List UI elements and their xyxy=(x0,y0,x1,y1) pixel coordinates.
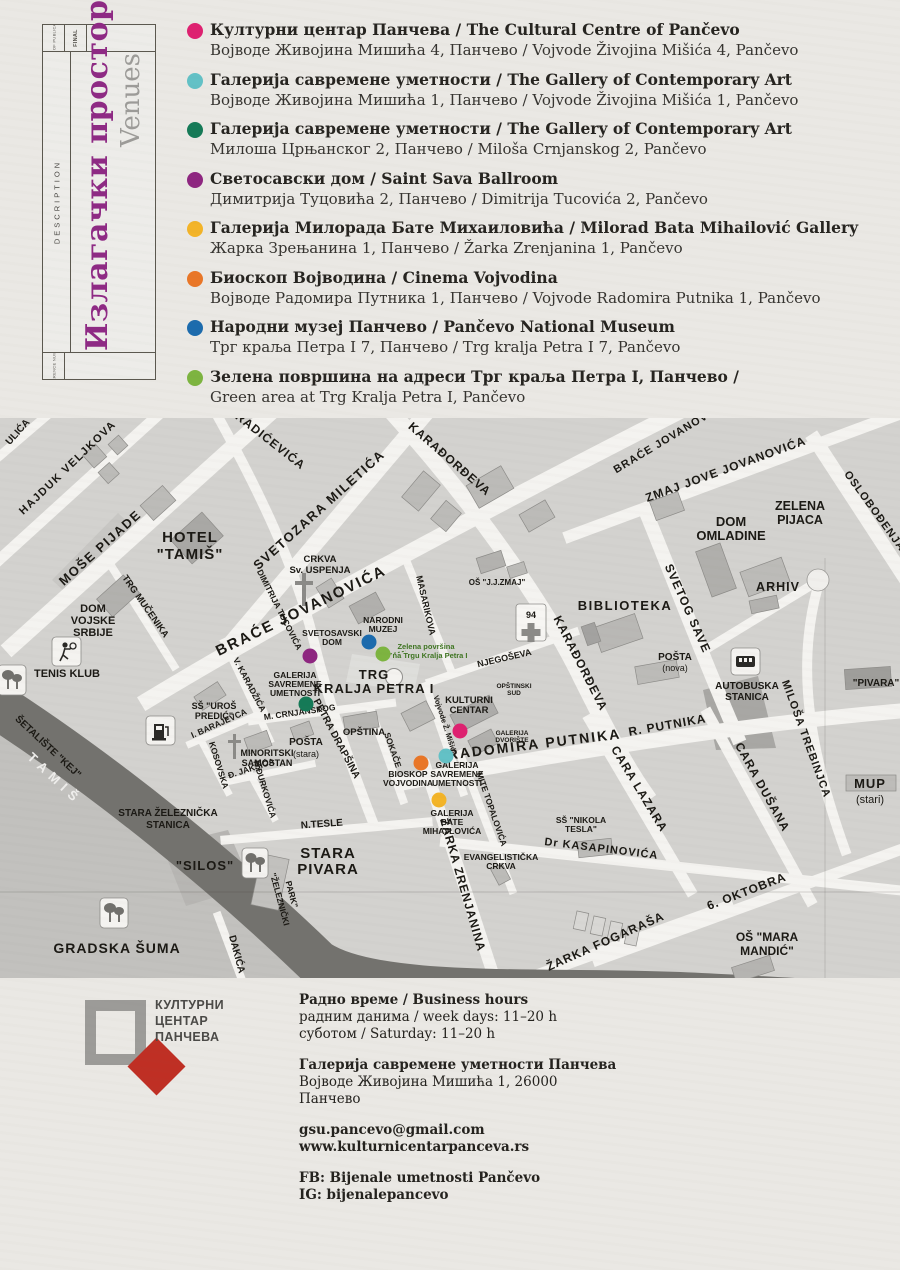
venue-name: Народни музеј Панчево / Pančevo National… xyxy=(210,317,680,337)
legend-item: Биоскоп Војводина / Cinema Vojvodina Вој… xyxy=(187,268,887,308)
map-label: STANICA xyxy=(725,692,769,703)
map-label: OMLADINE xyxy=(696,528,766,543)
map-label: CENTAR xyxy=(450,705,489,716)
map-label: (stara) xyxy=(293,749,319,759)
map-label: "TAMIŠ" xyxy=(157,545,224,563)
gallery-address-line1: Војводе Живојина Мишића 1, 26000 xyxy=(299,1074,729,1091)
map-label: MANDIĆ" xyxy=(740,943,794,958)
page-title: Излагачки простори xyxy=(80,53,116,351)
web-contact-block: gsu.pancevo@gmail.com www.kulturnicentar… xyxy=(299,1122,729,1156)
logo-line: ПАНЧЕВА xyxy=(155,1029,224,1045)
map-label: SUD xyxy=(507,690,521,697)
map-label: STANICA xyxy=(146,820,190,831)
description-label: DESCRIPTION xyxy=(52,160,61,244)
map-label: OŠ "MARA xyxy=(736,929,799,944)
map-label: UMETNOSTI xyxy=(270,688,320,698)
gallery-name: Галерија савремене уметности Панчева xyxy=(299,1057,729,1074)
map-label: Sv. USPENJA xyxy=(289,565,350,576)
legend-item: Народни музеј Панчево / Pančevo National… xyxy=(187,317,887,357)
frame-bottom-row: REFERENCE NUMBER xyxy=(43,352,155,379)
venue-dot-kulturni-centar xyxy=(453,724,468,739)
venue-name: Зелена површина на адреси Трг краља Петр… xyxy=(210,367,739,387)
venue-color-dot xyxy=(187,172,203,188)
venue-name: Културни центар Панчева / The Cultural C… xyxy=(210,20,798,40)
map-label: VOJVODINA xyxy=(383,778,433,788)
map-label: AUTOBUSKA xyxy=(715,681,779,692)
legend-item: Галерија савремене уметности / The Galle… xyxy=(187,119,887,159)
map-label: SŠ "UROŠ xyxy=(192,700,237,711)
legend-item: Културни центар Панчева / The Cultural C… xyxy=(187,20,887,60)
map-label: STARA xyxy=(300,845,356,862)
map-label: VOJSKE xyxy=(71,615,116,627)
map-label: PIJACA xyxy=(777,513,823,527)
venue-address: Димитрија Туцовића 2, Панчево / Dimitrij… xyxy=(210,189,708,209)
venue-color-dot xyxy=(187,23,203,39)
vertical-title: Излагачки простори Venues xyxy=(80,53,146,351)
venue-dot-galerija-bate-mihajlovica xyxy=(432,793,447,808)
venue-name: Галерија савремене уметности / The Galle… xyxy=(210,70,798,90)
map-label: PIVARA xyxy=(297,861,359,878)
tree-icon xyxy=(242,848,268,878)
map-label: SRBIJE xyxy=(73,627,113,639)
frame-cell-reference: REFERENCE NUMBER xyxy=(43,353,65,379)
venue-address: Милоша Црњанског 2, Панчево / Miloša Crn… xyxy=(210,139,792,159)
tree-icon xyxy=(0,665,26,695)
business-hours-saturday: суботом / Saturday: 11–20 h xyxy=(299,1026,729,1043)
bus-icon xyxy=(731,648,760,675)
gallery-address-line2: Панчево xyxy=(299,1091,729,1108)
map-label: OPŠTINSKI xyxy=(496,681,531,690)
venue-color-dot xyxy=(187,221,203,237)
business-hours-title: Радно време / Business hours xyxy=(299,992,729,1009)
venue-address: Green area at Trg Kralja Petra I, Pančev… xyxy=(210,387,739,407)
map-label: HOTEL xyxy=(162,529,218,546)
venue-dot-svetosavski-dom xyxy=(303,649,318,664)
map-label: TESLA" xyxy=(565,824,597,834)
map-label: OPŠTINA xyxy=(343,726,385,738)
venue-address: Војводе Живојина Мишића 1, Панчево / Voj… xyxy=(210,90,798,110)
map-label: DOM xyxy=(716,514,746,529)
venue-address: Жарка Зрењанина 1, Панчево / Žarka Zrenj… xyxy=(210,238,858,258)
venue-dot-narodni-muzej xyxy=(362,635,377,650)
logo-line: ЦЕНТАР xyxy=(155,1013,224,1029)
venue-dot-galerija-savremene-misica xyxy=(439,749,454,764)
legend-item: Зелена површина на адреси Трг краља Петр… xyxy=(187,367,887,407)
venue-color-dot xyxy=(187,370,203,386)
reference-label: REFERENCE NUMBER xyxy=(51,353,56,379)
map-label: DOM xyxy=(80,603,106,615)
email-address: gsu.pancevo@gmail.com xyxy=(299,1122,729,1139)
map-label: "PIVARA" xyxy=(853,678,900,689)
frame-cell-empty2 xyxy=(65,353,155,379)
venue-color-dot xyxy=(187,271,203,287)
logo-line: КУЛТУРНИ xyxy=(155,997,224,1013)
map-label: CRKVA xyxy=(486,861,516,871)
instagram-handle: IG: bijenalepancevo xyxy=(299,1187,729,1204)
legend-item: Галерија савремене уметности / The Galle… xyxy=(187,70,887,110)
page-title-en: Venues xyxy=(116,53,146,351)
venue-dot-zelena-povrsina xyxy=(376,647,391,662)
gallery-address-block: Галерија савремене уметности Панчева Вој… xyxy=(299,1057,729,1108)
city-map: ULIĆAHAJDUK VELJKOVAMOŠE PIJADESVETOZARA… xyxy=(0,418,900,978)
description-column: DESCRIPTION xyxy=(43,52,71,352)
map-label: POŠTA xyxy=(289,735,323,748)
map-label: OŠ "J.J.ZMAJ" xyxy=(469,578,526,587)
tree-icon xyxy=(100,898,128,928)
map-label: MUZEJ xyxy=(369,624,398,634)
legend-item: Галерија Милорада Бате Михаиловића / Mil… xyxy=(187,218,887,258)
map-label: (nova) xyxy=(662,663,688,673)
map-label: UMETNOSTI xyxy=(432,778,482,788)
map-label: (stari) xyxy=(856,794,884,806)
venue-color-dot xyxy=(187,122,203,138)
map-label: CRKVA xyxy=(303,554,336,565)
facebook-handle: FB: Bijenale umetnosti Pančevo xyxy=(299,1170,729,1187)
map-label: DOM xyxy=(322,637,342,647)
venue-name: Биоскоп Војводина / Cinema Vojvodina xyxy=(210,268,821,288)
venue-address: Војводе Радомира Путника 1, Панчево / Vo… xyxy=(210,288,821,308)
venue-address: Трг краља Петра I 7, Панчево / Trg kralj… xyxy=(210,337,680,357)
title-column: Излагачки простори Venues xyxy=(71,52,155,352)
venue-dot-galerija-savremene-crnjanskog xyxy=(299,697,314,712)
map-label: MUP xyxy=(854,776,886,791)
venue-name: Галерија Милорада Бате Михаиловића / Mil… xyxy=(210,218,858,238)
tennis-icon xyxy=(52,637,81,666)
map-label: Zelena površina xyxy=(397,642,455,651)
map-label: TRG xyxy=(359,667,389,682)
poster-page: DATE OF PUBLICATION FINAL DESCRIPTION Из… xyxy=(0,0,900,1270)
map-label: BIBLIOTEKA xyxy=(578,598,672,613)
map-label: PREDIĆ" xyxy=(195,710,233,721)
map-label: MIHAJLOVIĆA xyxy=(423,825,482,836)
map-label: MINORITSKI xyxy=(241,748,294,758)
map-label: GALERIJA xyxy=(496,730,529,737)
venue-color-dot xyxy=(187,73,203,89)
contact-info: Радно време / Business hours радним дани… xyxy=(299,992,729,1218)
map-label: ZELENA xyxy=(775,499,825,513)
kcp-logo-wordmark: КУЛТУРНИ ЦЕНТАР ПАНЧЕВА xyxy=(155,997,224,1045)
map-label: TENIS KLUB xyxy=(34,668,100,680)
map-label: SAMOSTAN xyxy=(242,758,293,768)
venue-color-dot xyxy=(187,320,203,336)
venue-name: Галерија савремене уметности / The Galle… xyxy=(210,119,792,139)
venue-address: Војводе Живојина Мишића 4, Панчево / Voj… xyxy=(210,40,798,60)
social-block: FB: Bijenale umetnosti Pančevo IG: bijen… xyxy=(299,1170,729,1204)
map-label: "SILOS" xyxy=(176,858,234,873)
map-label: STARA ŽELEZNIČKA xyxy=(118,806,217,819)
map-label: DVORIŠTE xyxy=(495,735,529,744)
map-label: POŠTA xyxy=(658,650,692,663)
frame-cell-date: DATE OF PUBLICATION xyxy=(43,25,65,51)
venue-name: Светосавски дом / Saint Sava Ballroom xyxy=(210,169,708,189)
map-label: na Trgu Kralja Petra I xyxy=(392,651,467,660)
map-label: KRALJA PETRA I xyxy=(314,681,435,696)
venues-legend: Културни центар Панчева / The Cultural C… xyxy=(187,20,887,416)
business-hours-block: Радно време / Business hours радним дани… xyxy=(299,992,729,1043)
business-hours-weekdays: радним данима / week days: 11–20 h xyxy=(299,1009,729,1026)
venue-dot-bioskop-vojvodina xyxy=(414,756,429,771)
map-label: 94 xyxy=(526,610,536,620)
map-label: GRADSKA ŠUMA xyxy=(53,939,180,956)
date-of-publication-label: DATE OF PUBLICATION xyxy=(51,25,56,51)
title-frame: DATE OF PUBLICATION FINAL DESCRIPTION Из… xyxy=(42,24,156,380)
legend-item: Светосавски дом / Saint Sava Ballroom Ди… xyxy=(187,169,887,209)
fuel-icon xyxy=(146,716,175,745)
website-url: www.kulturnicentarpanceva.rs xyxy=(299,1139,729,1156)
final-label: FINAL xyxy=(73,29,79,47)
roundabout-icon xyxy=(807,569,829,591)
frame-body: DESCRIPTION Излагачки простори Venues xyxy=(43,52,155,352)
map-label: ARHIV xyxy=(756,580,800,594)
